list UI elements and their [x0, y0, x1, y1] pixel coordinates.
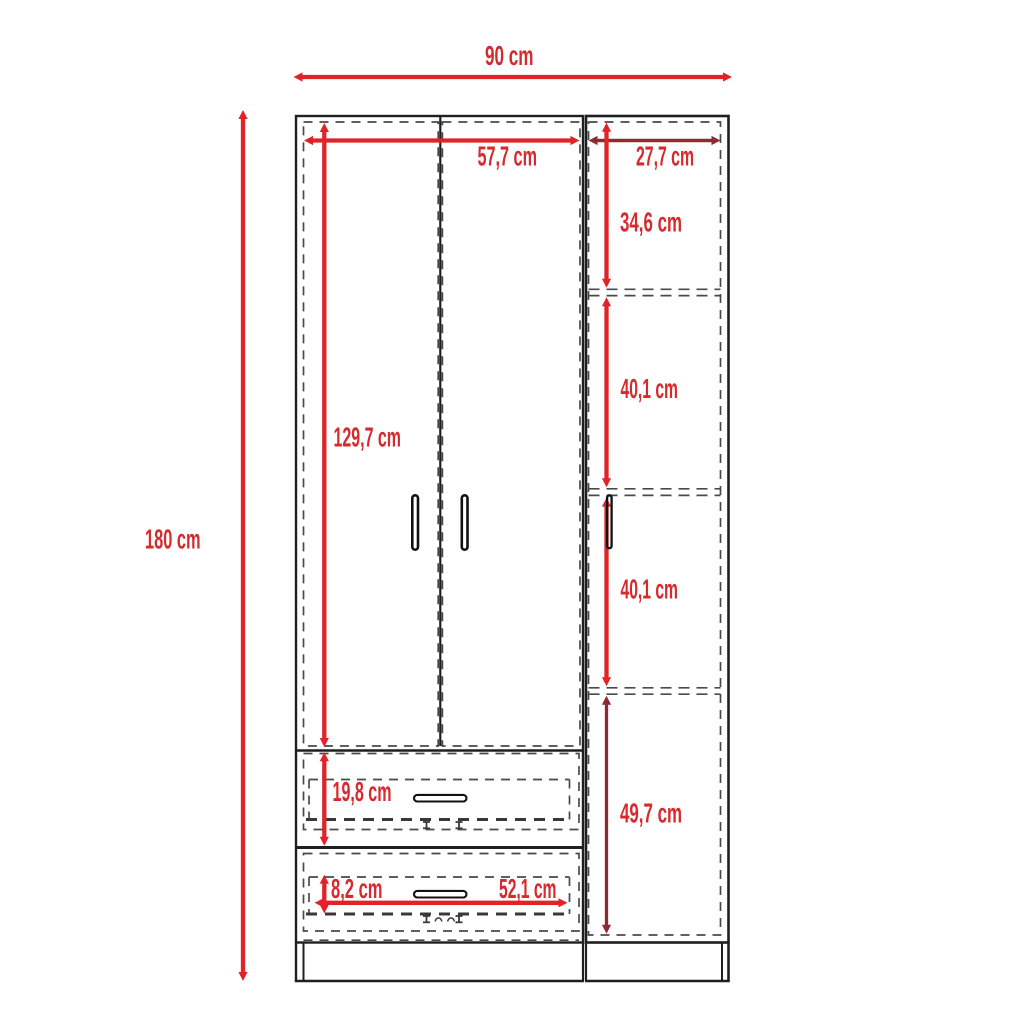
svg-text:19,8 cm: 19,8 cm: [333, 776, 392, 807]
svg-text:40,1 cm: 40,1 cm: [621, 574, 679, 605]
svg-text:129,7 cm: 129,7 cm: [334, 421, 402, 452]
svg-text:27,7 cm: 27,7 cm: [636, 140, 694, 171]
svg-text:40,1 cm: 40,1 cm: [621, 373, 679, 404]
svg-text:52,1 cm: 52,1 cm: [499, 873, 557, 904]
svg-text:180 cm: 180 cm: [145, 524, 201, 555]
svg-text:90 cm: 90 cm: [485, 40, 534, 71]
svg-text:49,7 cm: 49,7 cm: [620, 797, 682, 828]
svg-text:57,7 cm: 57,7 cm: [478, 140, 538, 171]
svg-text:34,6 cm: 34,6 cm: [620, 207, 682, 238]
svg-text:8,2 cm: 8,2 cm: [331, 873, 383, 904]
